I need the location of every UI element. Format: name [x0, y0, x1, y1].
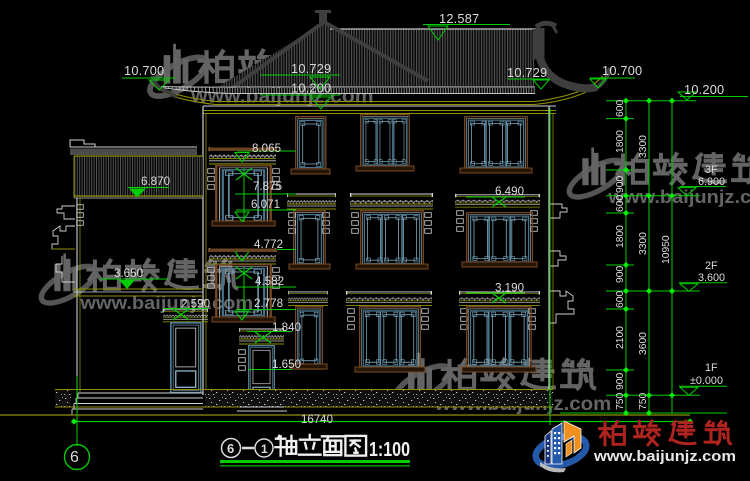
svg-text:10.200: 10.200	[291, 81, 331, 96]
svg-text:900: 900	[615, 176, 626, 193]
svg-text:4.772: 4.772	[254, 238, 283, 251]
svg-text:1.650: 1.650	[272, 358, 301, 371]
svg-text:600: 600	[615, 291, 626, 308]
svg-text:3300: 3300	[638, 232, 649, 255]
svg-text:900: 900	[615, 266, 626, 283]
svg-text:10950: 10950	[661, 235, 672, 264]
svg-text:750: 750	[638, 393, 649, 410]
svg-text:10.729: 10.729	[507, 65, 547, 80]
svg-text:www.baijunjz.com: www.baijunjz.com	[593, 448, 736, 465]
svg-text:2.778: 2.778	[254, 297, 283, 310]
svg-text:3.650: 3.650	[114, 267, 143, 280]
svg-text:3600: 3600	[638, 332, 649, 355]
svg-text:3F: 3F	[705, 164, 718, 176]
svg-text:3.190: 3.190	[495, 282, 524, 295]
svg-text:3.600: 3.600	[698, 272, 725, 284]
svg-text:6: 6	[227, 441, 234, 456]
svg-text:7.875: 7.875	[253, 180, 282, 193]
svg-text:2F: 2F	[705, 260, 718, 272]
svg-text:10.700: 10.700	[602, 63, 642, 78]
svg-text:6.071: 6.071	[251, 198, 280, 211]
svg-text:10.700: 10.700	[124, 63, 164, 78]
svg-text:1F: 1F	[705, 362, 718, 374]
svg-text:1800: 1800	[615, 225, 626, 248]
svg-text:10.729: 10.729	[291, 61, 331, 76]
svg-text:1800: 1800	[615, 130, 626, 153]
svg-text:6.900: 6.900	[698, 176, 725, 188]
svg-text:2.590: 2.590	[181, 298, 210, 311]
svg-text:8.065: 8.065	[252, 142, 281, 155]
svg-text:6.490: 6.490	[495, 185, 524, 198]
svg-text:6: 6	[70, 449, 79, 466]
svg-text:1: 1	[261, 442, 268, 456]
svg-text:12.587: 12.587	[439, 11, 479, 26]
svg-text:6.870: 6.870	[141, 175, 170, 188]
svg-text:16740: 16740	[301, 414, 333, 426]
svg-text:1:100: 1:100	[369, 439, 410, 461]
svg-text:900: 900	[615, 373, 626, 390]
svg-text:10.200: 10.200	[684, 82, 724, 97]
svg-text:750: 750	[615, 393, 626, 410]
svg-text:4.582: 4.582	[255, 275, 284, 288]
svg-text:±0.000: ±0.000	[690, 375, 723, 387]
svg-text:3300: 3300	[638, 135, 649, 158]
svg-text:1.840: 1.840	[272, 321, 301, 334]
svg-text:600: 600	[615, 195, 626, 212]
svg-text:2100: 2100	[615, 326, 626, 349]
svg-text:600: 600	[615, 100, 626, 117]
